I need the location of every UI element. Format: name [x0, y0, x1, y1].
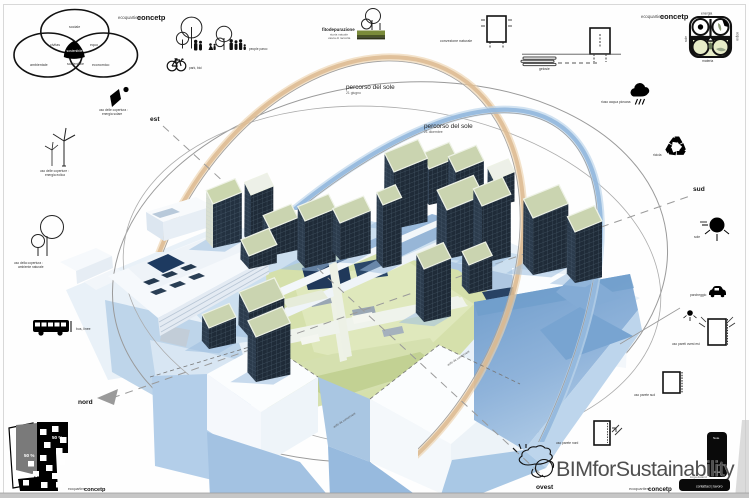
svg-text:ovest: ovest [536, 484, 554, 491]
svg-text:equo: equo [90, 43, 98, 47]
svg-text:convezione naturale: convezione naturale [440, 39, 472, 43]
svg-text:uso parete sud: uso parete sud [634, 393, 655, 397]
svg-text:ricicla: ricicla [653, 153, 662, 157]
svg-text:concetp: concetp [660, 12, 689, 21]
svg-text:parcheggio: parcheggio [690, 293, 706, 297]
svg-text:concetp: concetp [84, 487, 106, 493]
svg-text:lorga datanci: lorga datanci [690, 475, 708, 479]
svg-text:energia solare: energia solare [102, 112, 122, 116]
svg-text:sud: sud [693, 186, 705, 193]
svg-text:sostenibile: sostenibile [67, 62, 84, 66]
svg-text:ambientale: ambientale [30, 63, 48, 67]
svg-text:ecoquartiere: ecoquartiere [629, 487, 650, 491]
svg-text:Note: Note [713, 436, 720, 440]
svg-text:uso pareti ovest est: uso pareti ovest est [672, 342, 700, 346]
svg-text:sole: sole [694, 235, 700, 239]
svg-text:est: est [150, 116, 160, 123]
svg-text:sostenibile: sostenibile [67, 49, 83, 53]
svg-text:ambiente naturale: ambiente naturale [18, 265, 44, 269]
svg-text:park, bici: park, bici [189, 66, 202, 70]
svg-text:economico: economico [92, 63, 109, 67]
svg-text:gelosie: gelosie [539, 67, 550, 71]
svg-text:percorso del sole: percorso del sole [346, 84, 395, 91]
svg-text:riuso acqua piovana: riuso acqua piovana [601, 100, 631, 104]
svg-text:21 giugno: 21 giugno [346, 91, 361, 95]
svg-text:vasca di raccolta: vasca di raccolta [328, 36, 351, 40]
svg-text:uso parete nord: uso parete nord [556, 441, 579, 445]
svg-text:BIMforSustainability: BIMforSustainability [556, 457, 735, 481]
svg-text:energia eolica: energia eolica [45, 173, 65, 177]
svg-text:contattaci | lavoro: contattaci | lavoro [696, 485, 723, 489]
svg-text:concetp: concetp [137, 13, 166, 22]
svg-text:civitas: civitas [50, 43, 60, 47]
svg-text:nord: nord [78, 399, 93, 406]
svg-text:percorso del sole: percorso del sole [424, 123, 473, 130]
svg-text:bus, linee: bus, linee [76, 327, 91, 331]
svg-text:materia: materia [702, 59, 713, 63]
svg-text:people parco: people parco [249, 47, 268, 51]
svg-text:fitodepurazione: fitodepurazione [322, 27, 355, 32]
svg-text:concetp: concetp [648, 486, 672, 493]
svg-text:21 dicembre: 21 dicembre [424, 130, 443, 134]
svg-text:50 %: 50 % [52, 435, 62, 440]
svg-text:acqua: acqua [736, 32, 740, 41]
svg-text:sole: sole [684, 36, 688, 42]
svg-text:sociale: sociale [69, 25, 80, 29]
svg-text:50 %: 50 % [24, 453, 34, 458]
svg-text:energia: energia [701, 12, 712, 16]
